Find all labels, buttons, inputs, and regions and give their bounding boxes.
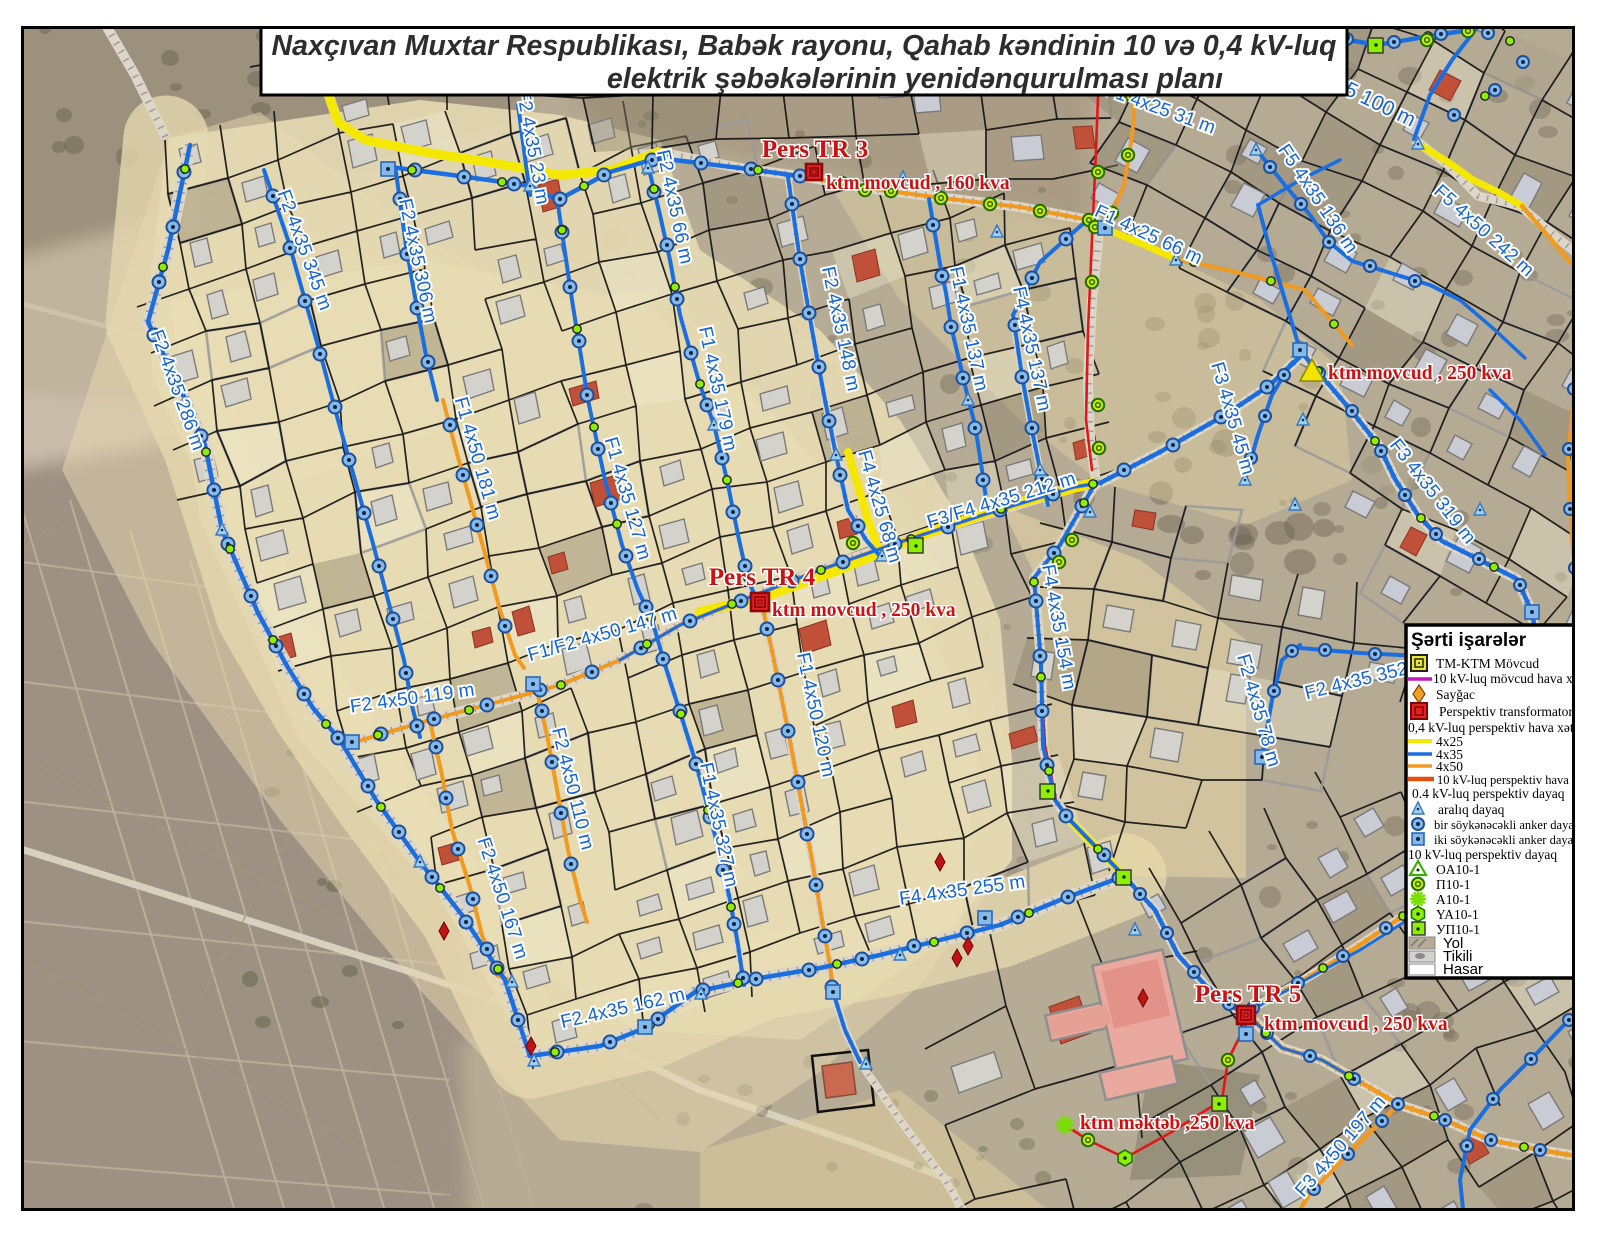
svg-text:iki söykənəcəkli anker dayaq: iki söykənəcəkli anker dayaq [1434, 833, 1580, 847]
svg-text:ktm məktəb ,250 kva: ktm məktəb ,250 kva [1080, 1113, 1255, 1134]
svg-text:YA10-1: YA10-1 [1436, 907, 1479, 922]
svg-text:10 kV-luq perspektiv hava xətt: 10 kV-luq perspektiv hava xətti [1437, 773, 1595, 787]
svg-text:bir söykənəcəkli anker dayaq: bir söykənəcəkli anker dayaq [1434, 818, 1581, 832]
svg-text:Pers TR 3: Pers TR 3 [762, 136, 868, 163]
svg-text:0.4 kV-luq perspektiv dayaq: 0.4 kV-luq perspektiv dayaq [1412, 786, 1565, 801]
svg-text:Pers TR 4: Pers TR 4 [709, 564, 816, 591]
svg-text:Hasar: Hasar [1443, 961, 1483, 978]
svg-text:Pers TR 5: Pers TR 5 [1195, 981, 1301, 1008]
svg-text:elektrik şəbəkələrinin yenidən: elektrik şəbəkələrinin yenidənqurulması … [607, 63, 1223, 95]
svg-text:4x50: 4x50 [1436, 759, 1463, 774]
svg-text:П10-1: П10-1 [1436, 877, 1471, 892]
svg-text:10 kV-luq mövcud hava xətti: 10 kV-luq mövcud hava xətti [1433, 671, 1590, 686]
svg-text:Perspektiv transformator: Perspektiv transformator [1439, 704, 1573, 719]
svg-text:0,4 kV-luq perspektiv hava xət: 0,4 kV-luq perspektiv hava xətti [1408, 720, 1581, 735]
svg-text:aralıq dayaq: aralıq dayaq [1438, 802, 1505, 817]
svg-text:ktm movcud , 250 kva: ktm movcud , 250 kva [1264, 1014, 1448, 1035]
svg-text:Sayğac: Sayğac [1436, 687, 1475, 702]
svg-text:TM-KTM Mövcud: TM-KTM Mövcud [1436, 656, 1539, 671]
svg-text:ktm movcud , 250 kva: ktm movcud , 250 kva [772, 600, 956, 621]
svg-text:Şərti işarələr: Şərti işarələr [1411, 630, 1527, 651]
svg-text:ktm movcud , 250 kva: ktm movcud , 250 kva [1328, 363, 1512, 384]
svg-text:Naxçıvan Muxtar Respublikası,: Naxçıvan Muxtar Respublikası, Babək rayo… [272, 30, 1337, 62]
svg-text:ktm movcud , 160 kva: ktm movcud , 160 kva [826, 173, 1010, 194]
svg-text:10 kV-luq perspektiv dayaq: 10 kV-luq perspektiv dayaq [1408, 847, 1557, 862]
svg-text:OA10-1: OA10-1 [1436, 862, 1480, 877]
svg-text:A10-1: A10-1 [1436, 892, 1471, 907]
